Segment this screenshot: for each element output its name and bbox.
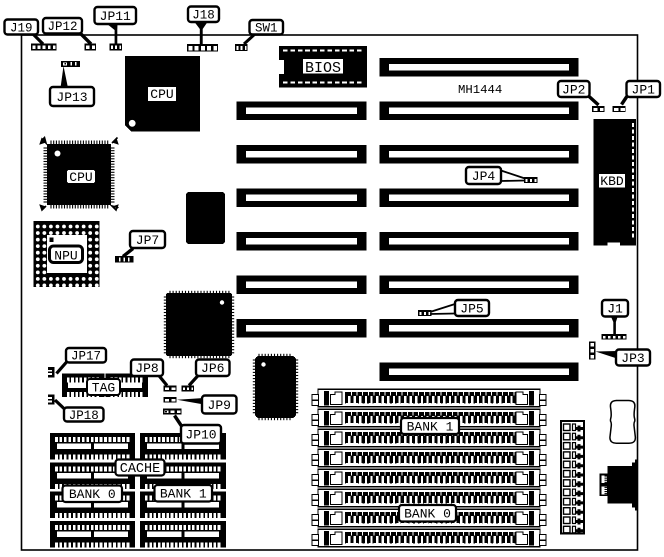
svg-text:CACHE: CACHE [120, 462, 161, 477]
svg-text:JP11: JP11 [100, 9, 131, 24]
svg-text:JP17: JP17 [71, 350, 101, 364]
svg-text:JP9: JP9 [208, 398, 231, 413]
svg-text:BANK 0: BANK 0 [404, 507, 451, 522]
svg-text:JP7: JP7 [136, 233, 159, 248]
svg-text:JP1: JP1 [632, 82, 656, 97]
svg-text:J1: J1 [607, 302, 623, 317]
svg-text:J18: J18 [192, 9, 215, 23]
svg-text:JP12: JP12 [47, 20, 77, 34]
svg-text:TAG: TAG [92, 380, 115, 395]
svg-text:CPU: CPU [69, 170, 92, 185]
svg-text:BIOS: BIOS [305, 60, 341, 77]
svg-text:MH1444: MH1444 [458, 83, 502, 97]
svg-text:JP6: JP6 [201, 361, 224, 376]
svg-text:JP8: JP8 [135, 361, 158, 376]
svg-text:JP13: JP13 [56, 90, 87, 105]
svg-text:BANK 0: BANK 0 [69, 487, 116, 502]
svg-text:JP3: JP3 [621, 351, 644, 366]
svg-text:CPU: CPU [150, 87, 173, 102]
svg-text:JP18: JP18 [69, 409, 99, 423]
svg-text:KBD: KBD [600, 174, 624, 189]
svg-text:BANK 1: BANK 1 [407, 419, 454, 434]
svg-text:JP10: JP10 [185, 428, 216, 443]
svg-text:SW1: SW1 [255, 22, 278, 36]
svg-text:BANK 1: BANK 1 [160, 487, 207, 502]
svg-text:J19: J19 [10, 21, 33, 35]
svg-text:JP2: JP2 [562, 82, 585, 97]
svg-text:JP4: JP4 [472, 169, 496, 184]
svg-text:JP5: JP5 [460, 301, 483, 316]
svg-text:NPU: NPU [54, 249, 77, 264]
